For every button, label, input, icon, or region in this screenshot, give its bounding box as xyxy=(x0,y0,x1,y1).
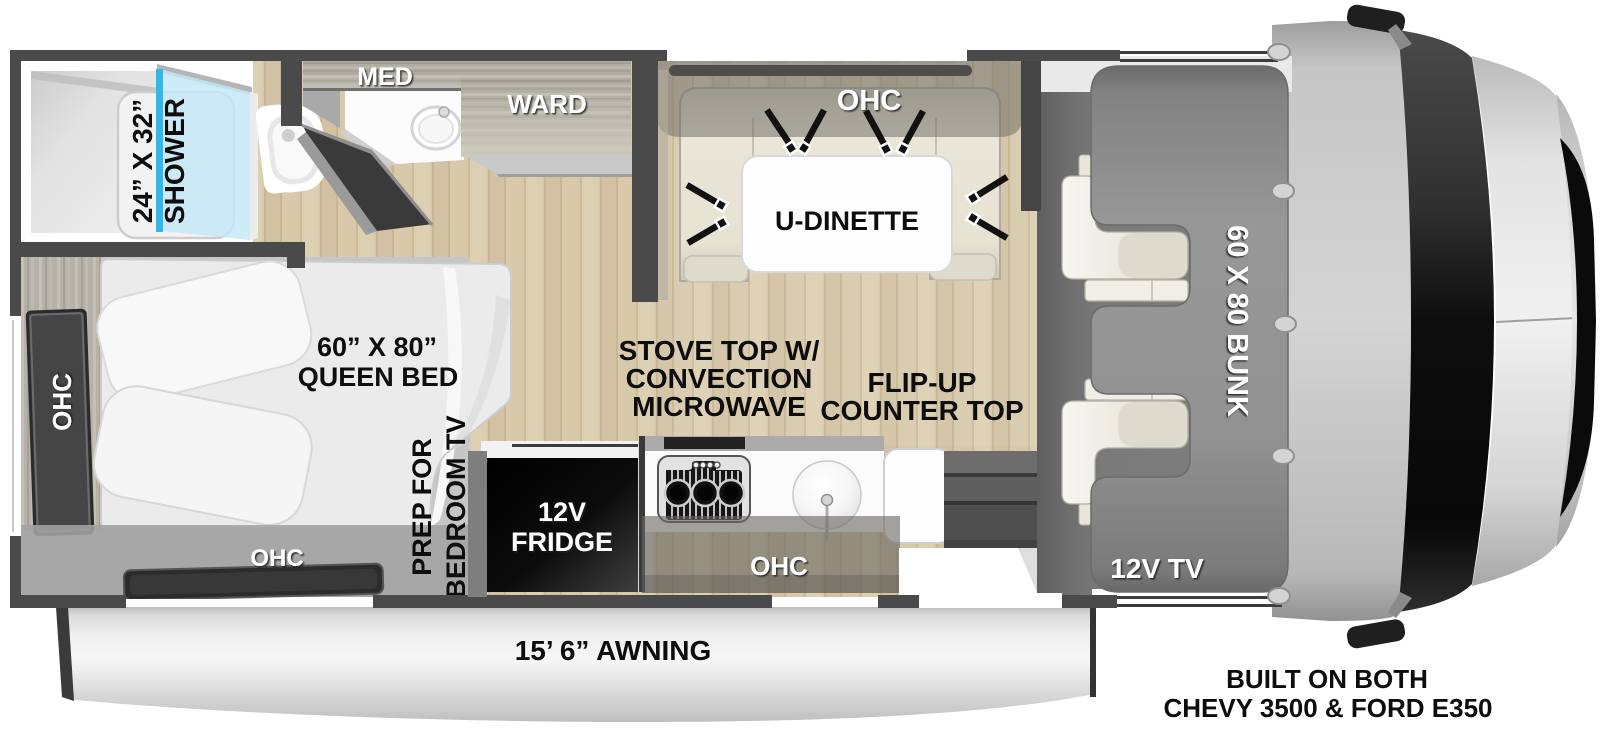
svg-text:60 X 80 BUNK: 60 X 80 BUNK xyxy=(1221,225,1253,417)
svg-text:CONVECTION: CONVECTION xyxy=(626,363,813,394)
svg-text:WARD: WARD xyxy=(507,89,586,119)
svg-text:24” X 32”: 24” X 32” xyxy=(127,99,158,224)
svg-text:FLIP-UP: FLIP-UP xyxy=(868,367,977,398)
svg-text:U-DINETTE: U-DINETTE xyxy=(775,206,919,236)
svg-text:STOVE TOP W/: STOVE TOP W/ xyxy=(619,335,820,366)
svg-text:FRIDGE: FRIDGE xyxy=(511,527,613,557)
svg-text:PREP FOR: PREP FOR xyxy=(407,438,437,576)
svg-text:OHC: OHC xyxy=(250,545,303,572)
svg-text:OHC: OHC xyxy=(750,551,808,581)
svg-text:12V: 12V xyxy=(538,497,586,527)
svg-text:MED: MED xyxy=(357,63,413,91)
svg-text:QUEEN BED: QUEEN BED xyxy=(298,362,459,392)
svg-text:BUILT ON BOTH: BUILT ON BOTH xyxy=(1226,664,1428,694)
svg-text:15’ 6” AWNING: 15’ 6” AWNING xyxy=(515,635,712,666)
svg-text:12V TV: 12V TV xyxy=(1110,553,1204,584)
svg-text:OHC: OHC xyxy=(47,373,77,431)
svg-text:BEDROOM TV: BEDROOM TV xyxy=(441,415,471,598)
svg-text:60” X 80”: 60” X 80” xyxy=(317,332,437,362)
svg-text:MICROWAVE: MICROWAVE xyxy=(632,391,806,422)
svg-text:SHOWER: SHOWER xyxy=(159,98,190,224)
svg-text:COUNTER TOP: COUNTER TOP xyxy=(820,395,1023,426)
svg-text:CHEVY 3500 & FORD E350: CHEVY 3500 & FORD E350 xyxy=(1164,693,1493,723)
